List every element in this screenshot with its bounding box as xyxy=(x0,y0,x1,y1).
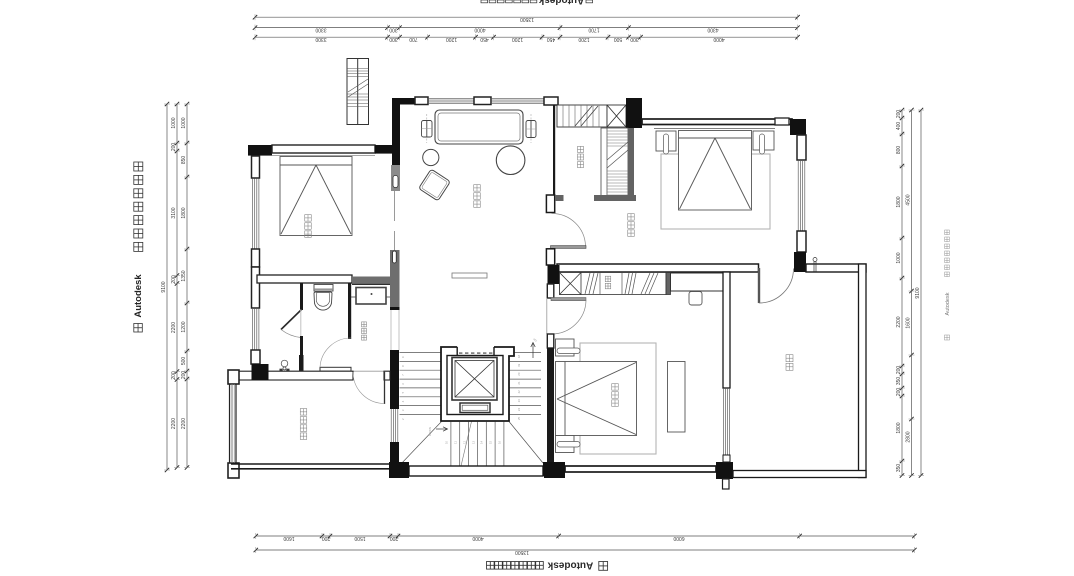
svg-text:800: 800 xyxy=(896,146,902,155)
svg-text:1200: 1200 xyxy=(578,36,589,42)
svg-text:500: 500 xyxy=(181,357,187,366)
svg-text:4300: 4300 xyxy=(707,27,718,33)
svg-text:1800: 1800 xyxy=(896,422,902,433)
svg-text:300: 300 xyxy=(389,27,398,33)
svg-text:850: 850 xyxy=(181,156,187,165)
svg-text:Autodesk: Autodesk xyxy=(538,0,584,5)
svg-text:300: 300 xyxy=(389,36,398,42)
svg-text:9100: 9100 xyxy=(161,281,167,292)
svg-text:1600: 1600 xyxy=(906,317,912,328)
svg-text:13500: 13500 xyxy=(520,16,534,22)
svg-text:3300: 3300 xyxy=(315,27,326,33)
svg-text:19: 19 xyxy=(517,363,521,367)
svg-text:3300: 3300 xyxy=(315,36,326,42)
svg-text:25: 25 xyxy=(517,416,521,420)
svg-text:350: 350 xyxy=(896,464,902,473)
svg-text:22: 22 xyxy=(517,390,521,394)
svg-text:1600: 1600 xyxy=(283,535,294,541)
svg-text:450: 450 xyxy=(547,36,556,42)
svg-text:20: 20 xyxy=(517,372,521,376)
svg-text:Autodesk: Autodesk xyxy=(133,274,144,318)
svg-text:300: 300 xyxy=(630,36,639,42)
svg-text:1350: 1350 xyxy=(181,270,187,281)
svg-text:4000: 4000 xyxy=(474,27,485,33)
svg-text:24: 24 xyxy=(517,408,521,412)
svg-text:200: 200 xyxy=(171,371,177,380)
svg-text:1500: 1500 xyxy=(354,535,365,541)
svg-text:13: 13 xyxy=(472,440,476,444)
svg-text:11: 11 xyxy=(454,441,458,444)
svg-text:350: 350 xyxy=(896,377,902,386)
svg-text:400: 400 xyxy=(896,122,902,131)
svg-text:3100: 3100 xyxy=(171,207,177,218)
svg-text:200: 200 xyxy=(896,110,902,119)
svg-text:200: 200 xyxy=(181,371,187,380)
svg-text:500: 500 xyxy=(614,36,623,42)
svg-text:200: 200 xyxy=(171,143,177,152)
svg-text:10: 10 xyxy=(445,440,449,444)
svg-text:2200: 2200 xyxy=(171,418,177,429)
svg-text:4500: 4500 xyxy=(906,194,912,205)
svg-text:1800: 1800 xyxy=(896,196,902,207)
svg-text:16: 16 xyxy=(498,440,502,444)
svg-text:2200: 2200 xyxy=(896,316,902,327)
svg-text:200: 200 xyxy=(171,275,177,284)
svg-text:1200: 1200 xyxy=(181,321,187,332)
svg-text:Autodesk: Autodesk xyxy=(945,292,951,315)
svg-text:14: 14 xyxy=(480,440,484,444)
svg-text:2200: 2200 xyxy=(171,322,177,333)
svg-text:200: 200 xyxy=(896,366,902,375)
svg-text:21: 21 xyxy=(517,381,521,385)
svg-text:200: 200 xyxy=(896,388,902,397)
svg-text:12: 12 xyxy=(463,440,467,444)
svg-text:1700: 1700 xyxy=(588,27,599,33)
svg-text:1200: 1200 xyxy=(446,36,457,42)
svg-text:6000: 6000 xyxy=(673,535,684,541)
svg-text:Autodesk: Autodesk xyxy=(547,559,593,570)
svg-text:23: 23 xyxy=(517,399,521,403)
svg-text:2200: 2200 xyxy=(181,418,187,429)
svg-text:200: 200 xyxy=(390,535,399,541)
svg-text:DOWN: DOWN xyxy=(428,427,432,436)
svg-text:4000: 4000 xyxy=(713,36,724,42)
svg-text:2800: 2800 xyxy=(906,431,912,442)
svg-text:18: 18 xyxy=(517,354,521,358)
svg-text:9100: 9100 xyxy=(915,287,921,298)
svg-text:450: 450 xyxy=(480,36,489,42)
svg-text:13500: 13500 xyxy=(515,549,529,555)
svg-text:1200: 1200 xyxy=(512,36,523,42)
svg-text:1000: 1000 xyxy=(171,117,177,128)
svg-text:200: 200 xyxy=(322,535,331,541)
svg-text:4000: 4000 xyxy=(472,535,483,541)
svg-text:15: 15 xyxy=(489,440,493,444)
svg-text:700: 700 xyxy=(409,36,418,42)
svg-text:1800: 1800 xyxy=(181,207,187,218)
svg-text:1000: 1000 xyxy=(181,117,187,128)
svg-text:1000: 1000 xyxy=(896,252,902,263)
